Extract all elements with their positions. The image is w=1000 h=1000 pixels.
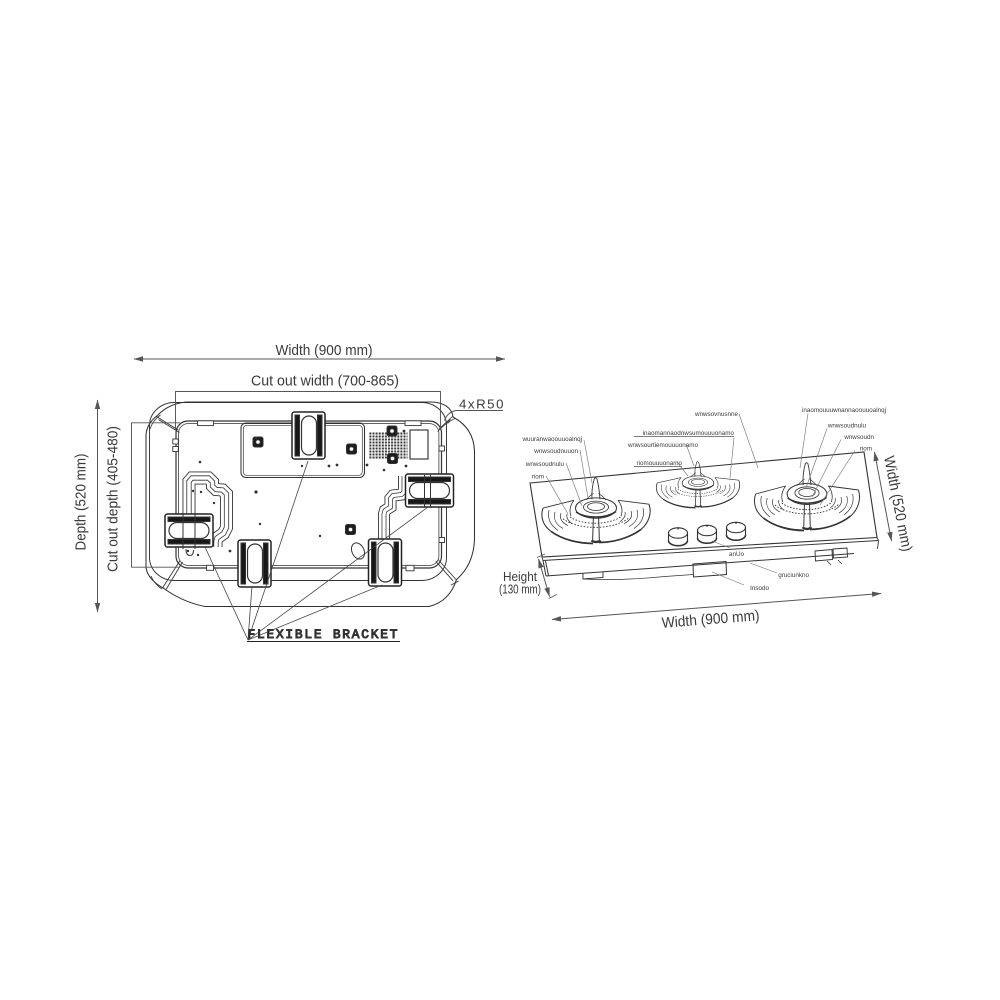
svg-text:wnwsovnusnne: wnwsovnusnne	[694, 411, 739, 418]
svg-text:Insodo: Insodo	[750, 585, 769, 592]
svg-text:wnwsoudn: wnwsoudn	[843, 434, 874, 441]
svg-text:inaomannaodnwsumouuuonamo: inaomannaodnwsumouuuonamo	[643, 430, 735, 437]
svg-text:Width (520 mm): Width (520 mm)	[880, 455, 915, 553]
svg-text:Width (900 mm): Width (900 mm)	[276, 342, 373, 359]
svg-text:wnwsoudnulu: wnwsoudnulu	[827, 423, 867, 430]
svg-text:Cut out depth (405-480): Cut out depth (405-480)	[106, 426, 122, 572]
svg-text:inaomouuuwnannaoouuoalnqj: inaomouuuwnannaoouuoalnqj	[802, 407, 886, 414]
svg-text:FLEXIBLE BRACKET: FLEXIBLE BRACKET	[248, 627, 400, 642]
svg-text:riomouuuonamo: riomouuuonamo	[636, 460, 682, 467]
svg-text:Cut out width (700-865): Cut out width (700-865)	[251, 374, 399, 390]
svg-text:(130 mm): (130 mm)	[499, 582, 541, 597]
svg-text:anUo: anUo	[729, 551, 745, 558]
svg-text:Depth (520 mm): Depth (520 mm)	[73, 454, 90, 551]
svg-text:wnwsoudnuuon: wnwsoudnuuon	[533, 448, 578, 455]
svg-text:wnwsoudnulu: wnwsoudnulu	[525, 461, 565, 468]
svg-text:wuuranwaoouuoalnqj: wuuranwaoouuoalnqj	[521, 436, 582, 443]
svg-text:gruciunkno: gruciunkno	[778, 572, 809, 579]
svg-text:riom: riom	[532, 474, 544, 481]
svg-text:riom: riom	[860, 446, 872, 453]
svg-text:Width (900 mm): Width (900 mm)	[661, 607, 760, 632]
svg-text:4xR50: 4xR50	[459, 397, 505, 412]
